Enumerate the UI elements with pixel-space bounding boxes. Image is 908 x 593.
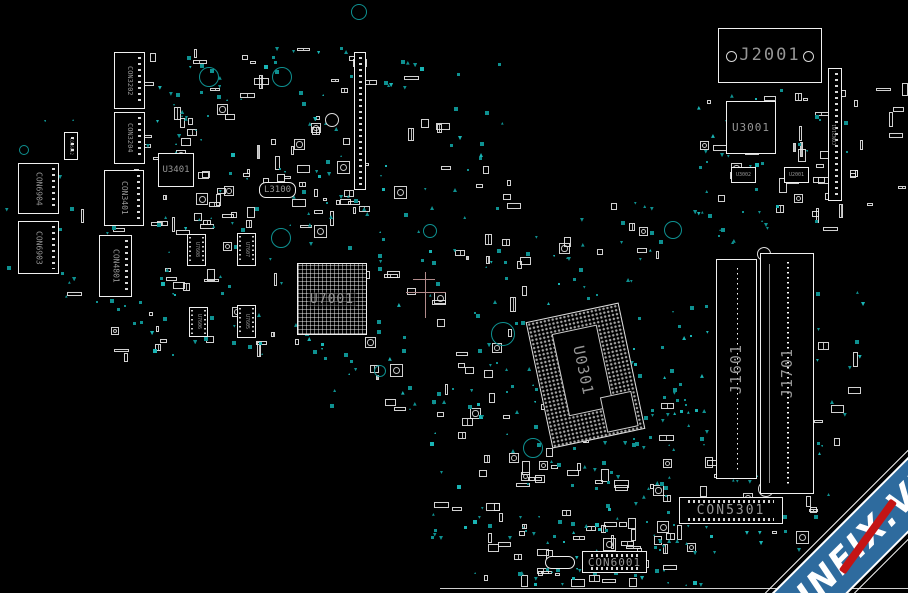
component-CON2101[interactable]: CON2101 xyxy=(828,68,842,201)
part-outline xyxy=(631,529,636,541)
part-outline xyxy=(707,100,711,104)
pad-circle xyxy=(494,345,500,351)
part-outline xyxy=(437,412,444,417)
part-outline xyxy=(456,352,468,356)
component-pin-connector[interactable] xyxy=(354,52,366,190)
test-point xyxy=(169,92,173,96)
test-point xyxy=(344,50,348,54)
test-point xyxy=(684,399,686,401)
part-divider xyxy=(579,537,580,539)
test-point xyxy=(163,317,167,321)
part-outline xyxy=(166,277,177,281)
test-point xyxy=(231,222,234,225)
component-U7001[interactable]: U7001 xyxy=(297,263,367,335)
part-outline xyxy=(160,339,167,343)
part-divider xyxy=(513,298,514,311)
part-outline xyxy=(663,565,677,570)
test-point xyxy=(821,445,823,447)
test-point xyxy=(650,231,654,235)
cpu-die-small xyxy=(600,391,639,433)
part-outline xyxy=(455,250,465,256)
part-outline xyxy=(323,198,327,201)
part-outline xyxy=(181,138,191,146)
test-point xyxy=(827,493,830,496)
pad-circle xyxy=(340,164,348,172)
test-point xyxy=(378,267,382,271)
part-divider xyxy=(439,125,440,132)
test-point xyxy=(458,136,462,140)
part-outline xyxy=(499,513,503,522)
test-point xyxy=(382,188,385,191)
part-divider xyxy=(411,129,412,140)
test-point xyxy=(158,86,162,90)
test-point xyxy=(660,482,664,486)
part-outline xyxy=(502,239,510,246)
component-label-U2001: U2001 xyxy=(789,173,804,178)
part-divider xyxy=(177,108,178,119)
part-divider xyxy=(841,205,842,217)
test-point xyxy=(626,278,630,282)
test-point xyxy=(221,292,224,295)
part-divider xyxy=(316,128,317,134)
part-divider xyxy=(335,80,336,81)
part-outline xyxy=(503,194,511,200)
component-U2001[interactable]: U2001 xyxy=(784,167,809,183)
component-CON6903[interactable]: CON6903 xyxy=(18,221,59,274)
part-outline xyxy=(637,248,647,253)
component-CON6001[interactable]: CON6001 xyxy=(582,551,647,573)
via-hole xyxy=(19,145,29,155)
part-divider xyxy=(302,183,303,186)
test-point xyxy=(672,311,674,313)
component-L3100[interactable]: L3100 xyxy=(259,182,296,198)
test-point xyxy=(380,175,382,177)
test-point xyxy=(663,570,665,572)
component-J2001[interactable]: J2001 xyxy=(718,28,822,83)
test-point xyxy=(485,266,487,268)
part-outline xyxy=(277,174,285,182)
test-point xyxy=(309,242,313,246)
part-outline xyxy=(541,571,552,574)
component-U3401[interactable]: U3401 xyxy=(158,153,194,187)
part-divider xyxy=(488,257,489,263)
part-outline xyxy=(514,554,522,560)
test-point xyxy=(649,436,652,439)
test-point xyxy=(563,541,565,543)
test-point xyxy=(680,410,683,413)
part-divider xyxy=(823,343,824,349)
test-point xyxy=(457,73,460,76)
test-point xyxy=(687,424,690,427)
component-J1701[interactable]: J1701 xyxy=(760,253,814,494)
test-point xyxy=(468,405,472,409)
pad-circle xyxy=(689,545,694,550)
test-point xyxy=(818,452,821,455)
test-point xyxy=(429,250,432,253)
part-divider xyxy=(666,436,667,440)
test-point xyxy=(532,532,536,536)
test-point xyxy=(413,402,417,406)
mounting-hole xyxy=(325,113,339,127)
test-point xyxy=(497,249,501,253)
pad-circle xyxy=(472,410,478,416)
part-outline xyxy=(687,543,696,552)
part-outline xyxy=(854,100,858,107)
via-hole xyxy=(664,221,682,239)
test-point xyxy=(659,240,663,244)
component-U7605[interactable]: U7605 xyxy=(237,305,256,338)
part-divider xyxy=(670,534,671,539)
test-point xyxy=(703,444,705,446)
test-point xyxy=(150,331,154,335)
test-point xyxy=(496,362,498,364)
part-outline xyxy=(247,169,250,174)
test-point xyxy=(403,336,406,339)
part-outline xyxy=(365,337,376,348)
part-outline xyxy=(434,502,449,508)
test-point xyxy=(817,328,820,331)
test-point xyxy=(156,120,159,123)
test-point xyxy=(817,442,820,445)
test-point xyxy=(673,392,676,395)
part-divider xyxy=(801,143,802,156)
part-outline xyxy=(225,114,235,120)
component-label-CON6002: CON6002 xyxy=(69,138,73,155)
test-point xyxy=(275,47,279,51)
test-point xyxy=(302,190,306,194)
test-point xyxy=(583,465,587,469)
part-outline xyxy=(488,533,492,543)
test-point xyxy=(228,285,231,288)
part-divider xyxy=(158,345,159,350)
pad-circle xyxy=(225,244,230,249)
component-U7606[interactable]: U7606 xyxy=(189,307,208,337)
test-point xyxy=(526,252,530,256)
part-outline xyxy=(589,575,600,582)
test-point xyxy=(638,317,641,320)
test-point xyxy=(608,508,611,511)
test-point xyxy=(668,444,670,446)
part-outline xyxy=(445,384,448,395)
test-point xyxy=(557,463,561,467)
component-label-U3401: U3401 xyxy=(162,166,189,175)
part-divider xyxy=(627,542,628,545)
part-outline xyxy=(657,521,669,533)
test-point xyxy=(705,190,708,193)
test-point xyxy=(350,360,353,363)
test-point xyxy=(302,102,306,106)
part-outline xyxy=(814,420,823,423)
test-point xyxy=(676,399,679,402)
part-outline xyxy=(793,143,796,152)
part-outline xyxy=(223,242,232,251)
test-point xyxy=(480,142,484,146)
part-outline xyxy=(404,76,419,80)
test-point xyxy=(571,484,574,487)
part-outline xyxy=(853,352,858,367)
test-point xyxy=(798,143,801,146)
pad-circle xyxy=(561,245,567,251)
component-small-pill[interactable] xyxy=(545,556,575,569)
part-outline xyxy=(867,203,873,206)
test-point xyxy=(720,153,724,157)
test-point xyxy=(326,202,328,204)
part-divider xyxy=(633,547,634,548)
part-outline xyxy=(231,212,237,218)
component-U3001[interactable]: U3001 xyxy=(726,101,776,154)
test-point xyxy=(603,441,607,445)
component-CON6904[interactable]: CON6904 xyxy=(18,163,59,214)
part-outline xyxy=(209,202,220,207)
boardview-canvas[interactable]: J2001 U3001 U3002 U2001 CON2101 CON3202 … xyxy=(0,0,908,593)
test-point xyxy=(535,236,538,239)
test-point xyxy=(718,235,720,237)
test-point xyxy=(532,384,534,386)
part-outline xyxy=(611,203,617,210)
test-point xyxy=(210,316,214,320)
test-point xyxy=(856,291,859,294)
part-divider xyxy=(207,221,208,224)
part-outline xyxy=(898,186,906,189)
part-divider xyxy=(902,187,903,188)
test-point xyxy=(193,340,197,344)
test-point xyxy=(429,294,432,297)
test-point xyxy=(354,199,358,203)
part-outline xyxy=(274,273,277,286)
test-point xyxy=(434,529,437,532)
test-point xyxy=(706,331,709,334)
part-divider xyxy=(667,404,668,408)
part-outline xyxy=(240,93,255,98)
test-point xyxy=(489,364,492,367)
part-divider xyxy=(780,206,781,212)
component-label-CON3401: CON3401 xyxy=(120,181,128,215)
part-divider xyxy=(369,81,370,84)
part-outline xyxy=(172,217,175,232)
component-U3002[interactable]: U3002 xyxy=(731,167,756,183)
part-outline xyxy=(571,579,585,587)
test-point xyxy=(164,216,167,219)
part-outline xyxy=(507,180,511,186)
test-point xyxy=(72,277,76,281)
test-point xyxy=(175,143,177,145)
part-divider xyxy=(665,545,666,553)
part-outline xyxy=(437,319,445,327)
test-point xyxy=(705,526,708,529)
part-outline xyxy=(705,457,713,468)
test-point xyxy=(200,139,202,141)
test-point xyxy=(650,207,654,211)
pad-circle xyxy=(641,229,646,234)
part-divider xyxy=(462,433,463,438)
part-outline xyxy=(510,297,516,312)
part-outline xyxy=(509,453,519,463)
part-outline xyxy=(902,83,908,96)
part-divider xyxy=(524,525,525,528)
part-divider xyxy=(165,196,166,199)
part-divider xyxy=(199,61,200,63)
part-outline xyxy=(394,407,406,411)
part-outline xyxy=(124,353,128,362)
test-point xyxy=(745,531,749,535)
part-outline xyxy=(387,271,400,278)
test-point xyxy=(558,283,560,285)
test-point xyxy=(654,546,657,549)
part-divider xyxy=(258,146,259,158)
test-point xyxy=(344,353,348,357)
part-divider xyxy=(349,191,350,196)
test-point xyxy=(479,153,483,157)
part-outline xyxy=(876,88,891,91)
part-outline xyxy=(795,93,802,101)
via-hole xyxy=(271,228,291,248)
test-point xyxy=(96,301,98,303)
part-divider xyxy=(467,257,468,259)
test-point xyxy=(200,91,203,94)
test-point xyxy=(534,401,536,403)
test-point xyxy=(289,224,291,226)
component-CON5301[interactable]: CON5301 xyxy=(679,497,783,524)
part-outline xyxy=(656,251,659,259)
pad-circle xyxy=(523,474,528,479)
part-outline xyxy=(421,119,429,128)
test-point xyxy=(378,254,382,258)
test-point xyxy=(546,541,549,544)
test-point xyxy=(819,119,821,121)
part-outline xyxy=(573,536,585,540)
part-outline xyxy=(194,49,197,58)
test-point xyxy=(844,121,848,125)
test-point xyxy=(421,259,424,262)
part-outline xyxy=(604,522,617,527)
component-label-CON3202: CON3202 xyxy=(126,66,133,96)
component-label-CON6001: CON6001 xyxy=(588,557,641,568)
part-divider xyxy=(798,94,799,100)
test-point xyxy=(573,447,576,450)
test-point xyxy=(233,325,236,328)
part-divider xyxy=(162,222,163,225)
component-CON4801[interactable]: CON4801 xyxy=(99,235,132,297)
component-CON6002[interactable]: CON6002 xyxy=(64,132,78,160)
crosshair-horizontal xyxy=(406,292,446,293)
component-CON3401[interactable]: CON3401 xyxy=(104,170,144,226)
pad-circle xyxy=(226,188,232,194)
part-outline xyxy=(498,542,511,547)
component-U7607[interactable]: U7607 xyxy=(237,233,256,266)
pad-circle xyxy=(702,143,707,148)
part-divider xyxy=(518,555,519,559)
test-point xyxy=(695,409,698,412)
component-CON3202[interactable]: CON3202 xyxy=(114,52,145,109)
part-outline xyxy=(224,186,234,196)
test-point xyxy=(815,220,818,223)
part-outline xyxy=(848,387,861,394)
test-point xyxy=(598,528,601,531)
part-outline xyxy=(812,211,819,217)
pad-circle xyxy=(393,367,401,375)
test-point xyxy=(408,386,412,390)
test-point xyxy=(682,336,686,340)
part-outline xyxy=(111,327,119,335)
test-point xyxy=(704,150,708,154)
test-point xyxy=(124,305,126,307)
test-point xyxy=(160,277,163,280)
test-point xyxy=(324,357,327,360)
component-J1601[interactable]: J1601 xyxy=(716,259,757,479)
component-label-CON3204: CON3204 xyxy=(126,123,133,153)
test-point xyxy=(702,409,706,413)
part-outline xyxy=(441,166,451,170)
component-U7608[interactable]: U7608 xyxy=(187,234,206,266)
test-point xyxy=(437,392,441,396)
part-outline xyxy=(259,75,263,89)
part-divider xyxy=(594,576,595,581)
pad-circle xyxy=(113,329,117,333)
test-point xyxy=(231,153,235,157)
test-point xyxy=(434,432,436,434)
test-point xyxy=(409,408,411,410)
test-point xyxy=(685,584,687,586)
component-label-CON4801: CON4801 xyxy=(112,249,120,283)
part-outline xyxy=(597,249,603,255)
component-label-CON6903: CON6903 xyxy=(35,231,43,265)
test-point xyxy=(498,63,501,66)
test-point xyxy=(264,65,268,69)
test-point xyxy=(558,520,562,524)
test-point xyxy=(602,461,606,465)
part-outline xyxy=(659,435,674,441)
test-point xyxy=(797,548,801,552)
part-outline xyxy=(183,283,190,291)
test-point xyxy=(477,403,480,406)
part-divider xyxy=(261,76,262,88)
test-point xyxy=(490,261,493,264)
part-divider xyxy=(186,284,187,290)
part-outline xyxy=(484,455,490,463)
part-outline xyxy=(353,207,356,214)
test-point xyxy=(473,520,477,524)
part-outline xyxy=(465,367,474,374)
part-outline xyxy=(889,112,893,127)
component-CON3204[interactable]: CON3204 xyxy=(114,112,145,164)
test-point xyxy=(693,210,697,214)
part-outline xyxy=(503,415,510,419)
test-point xyxy=(655,569,659,573)
part-outline xyxy=(809,509,818,512)
test-point xyxy=(232,341,236,345)
test-point xyxy=(527,367,531,371)
test-point xyxy=(690,306,694,310)
part-outline xyxy=(537,549,549,556)
part-outline xyxy=(486,256,490,264)
test-point xyxy=(505,368,508,371)
test-point xyxy=(452,388,454,390)
test-point xyxy=(436,282,440,286)
part-outline xyxy=(661,403,674,409)
test-point xyxy=(633,348,635,350)
test-point xyxy=(350,75,353,78)
part-outline xyxy=(458,432,466,439)
via-hole xyxy=(491,322,515,346)
test-point xyxy=(189,66,192,69)
test-point xyxy=(506,391,508,393)
part-outline xyxy=(149,312,153,316)
test-point xyxy=(515,322,518,325)
part-outline xyxy=(294,139,305,150)
part-outline xyxy=(458,363,465,368)
crosshair-tick xyxy=(413,279,435,280)
pad-circle xyxy=(796,196,801,201)
